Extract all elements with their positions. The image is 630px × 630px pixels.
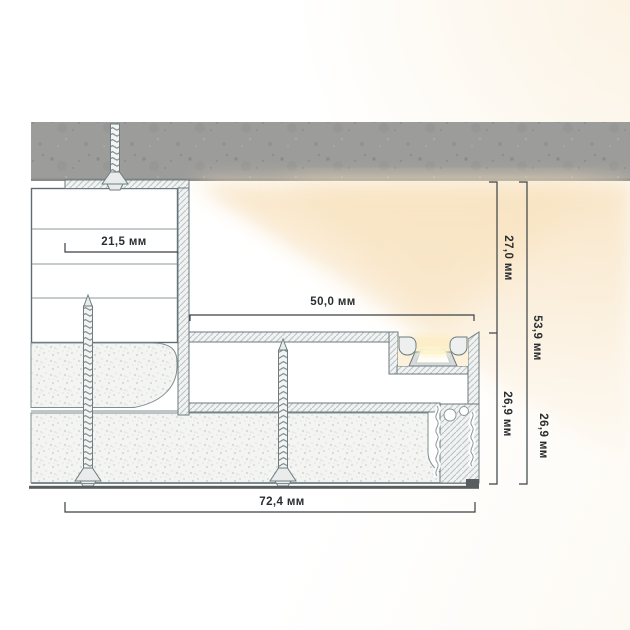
- dimension-label-21-5: 21,5 мм: [79, 234, 169, 250]
- dimension-label-53-9: 53,9 мм: [529, 293, 545, 383]
- led-module: [398, 334, 468, 366]
- dimension-label-72-4: 72,4 мм: [237, 494, 327, 510]
- profile-cross-section-diagram: 21,5 мм 50,0 мм 72,4 мм 27,0 мм 26,9 мм …: [0, 0, 630, 630]
- dimension-label-27-0: 27,0 мм: [500, 213, 516, 303]
- dimension-label-26-9-outer: 26,9 мм: [535, 391, 551, 481]
- profile-bottom-flange: [189, 403, 440, 412]
- concrete-ceiling-slab: [31, 122, 630, 181]
- dimension-label-50-0: 50,0 мм: [288, 294, 378, 310]
- led-channel-left-lip: [399, 337, 416, 355]
- profile-shelf: [189, 332, 390, 342]
- left-bracket-box: [32, 189, 178, 343]
- profile-web: [178, 188, 189, 415]
- led-channel-bottom: [397, 366, 468, 374]
- led-channel-right-lip: [450, 337, 467, 355]
- dimension-label-26-9-inner: 26,9 мм: [499, 369, 515, 459]
